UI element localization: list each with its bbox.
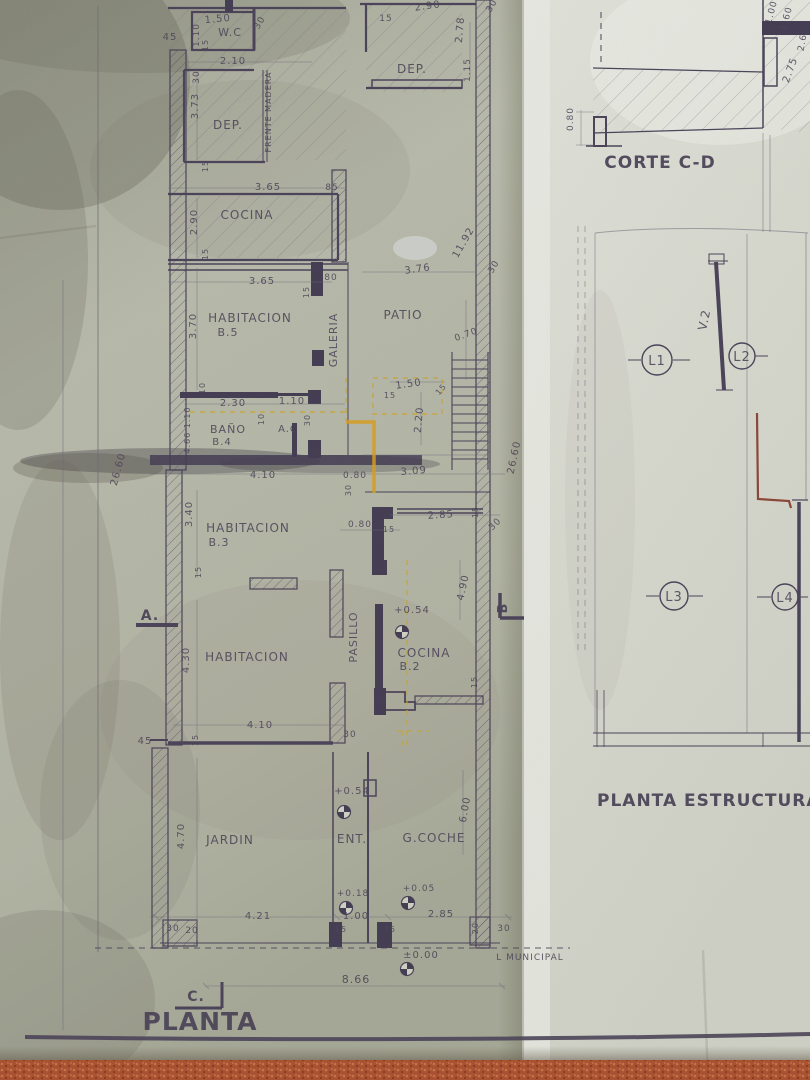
photo-grain: [0, 0, 810, 1080]
blueprint-photo: 451.501.1015W.C302.10303.73DEP.FRENTE MA…: [0, 0, 810, 1080]
drawing-canvas: 451.501.1015W.C302.10303.73DEP.FRENTE MA…: [0, 0, 810, 1080]
